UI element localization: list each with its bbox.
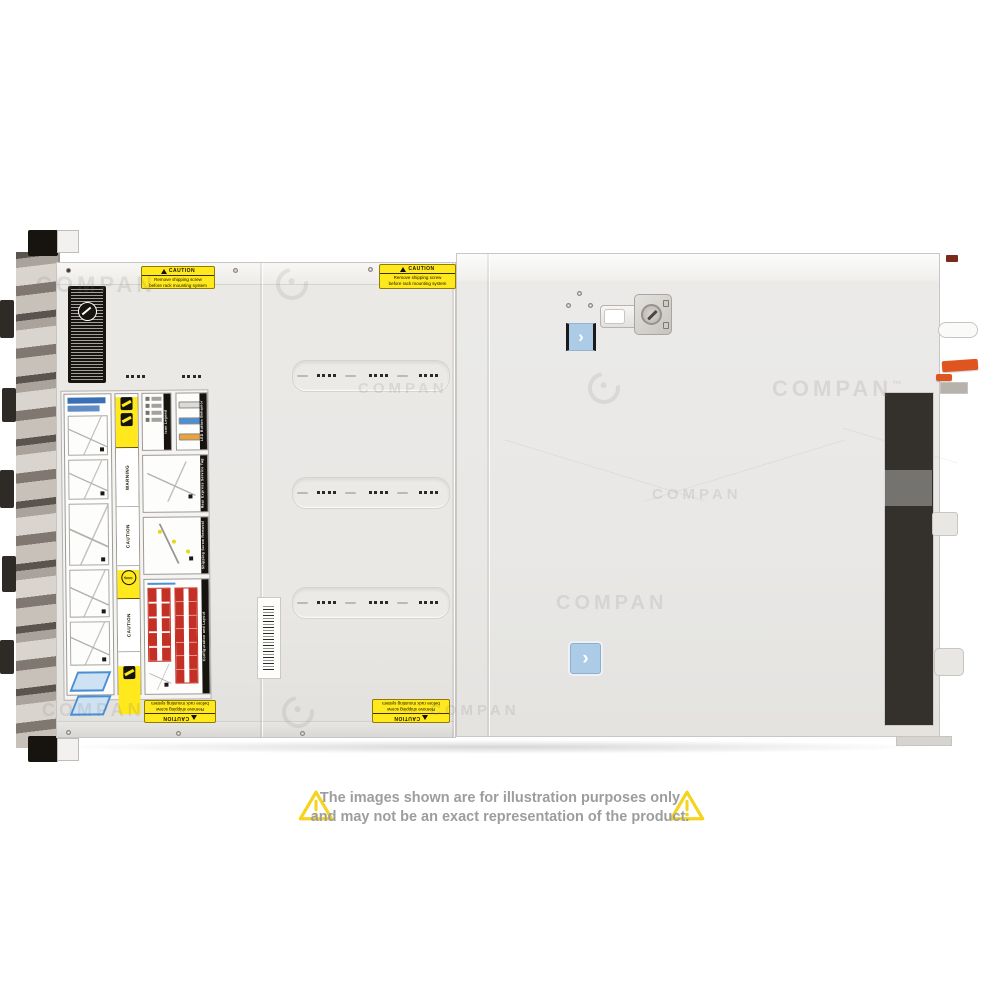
lid-step-diagram bbox=[70, 621, 110, 665]
service-instruction-label: WARNING CAUTION 5mm CAUTION Icon Legend bbox=[60, 389, 211, 701]
led-bar-blue bbox=[179, 417, 201, 424]
shipping-screw-diagram bbox=[148, 523, 196, 564]
rail-step-diagram bbox=[69, 503, 110, 565]
disclaimer: The images shown are for illustration pu… bbox=[0, 789, 1000, 827]
caution-sticker: CAUTION Remove shipping screwbefore rack… bbox=[144, 700, 216, 723]
rail-instructions-label bbox=[63, 393, 114, 695]
service-tag-diagram bbox=[147, 461, 195, 502]
legend-icon bbox=[146, 418, 162, 422]
lid-step-diagram bbox=[69, 569, 110, 617]
lid-seam bbox=[452, 263, 454, 737]
led-behavior-title: LED Button Behavior bbox=[199, 393, 207, 449]
rear-bracket bbox=[940, 382, 968, 394]
warning-triangle-icon bbox=[400, 267, 406, 272]
service-tag-title: Rear Express Service Tag bbox=[200, 455, 208, 511]
legend-icon bbox=[146, 411, 162, 415]
rivet bbox=[588, 303, 593, 308]
icon-legend-title: Icon Legend bbox=[163, 394, 171, 450]
vent-highlight bbox=[884, 470, 932, 506]
drive-handle-nub bbox=[2, 388, 16, 422]
screw-size-icon: 5mm bbox=[121, 570, 136, 585]
caution-header: CAUTION bbox=[408, 266, 434, 272]
legend-icon bbox=[145, 397, 161, 401]
watermark-text: COMPAN bbox=[556, 592, 667, 615]
led-behavior-block: LED Button Behavior bbox=[175, 392, 208, 450]
warning-triangle-icon bbox=[161, 269, 167, 274]
configuration-block: Configuration and Layout bbox=[143, 578, 210, 695]
warning-text: WARNING bbox=[116, 448, 139, 506]
config-legend-bar bbox=[147, 583, 175, 585]
screw-hole bbox=[233, 268, 238, 273]
shipping-screw-title: Shipping Screw Removal bbox=[201, 517, 209, 573]
drive-handle-nub bbox=[0, 640, 14, 674]
lid-shape-diagram bbox=[69, 671, 111, 691]
pinch-hazard-icon bbox=[121, 413, 133, 426]
unlock-icon bbox=[663, 300, 669, 307]
info-label-column: Icon Legend LED Button Behavior Rear Exp… bbox=[141, 392, 208, 695]
rivet bbox=[566, 303, 571, 308]
drive-handle-nub bbox=[0, 470, 14, 508]
shipping-screw-block: Shipping Screw Removal bbox=[143, 516, 210, 575]
rear-foot bbox=[896, 736, 952, 746]
screw-hole bbox=[300, 731, 305, 736]
barcode-sticker bbox=[257, 597, 281, 679]
rear-nub bbox=[946, 255, 958, 262]
psu-latch-orange bbox=[936, 374, 952, 381]
warning-strip: WARNING CAUTION 5mm CAUTION bbox=[114, 393, 141, 695]
front-drive-bay-strip bbox=[16, 252, 60, 748]
rack-ear-bottom bbox=[28, 736, 58, 762]
vent-holes bbox=[182, 375, 185, 378]
watermark-text: COMPAN bbox=[358, 380, 448, 397]
screw-hole bbox=[368, 267, 373, 272]
latch-knob bbox=[604, 309, 625, 324]
rear-vent-grid bbox=[884, 392, 934, 726]
screw-hole bbox=[66, 730, 71, 735]
screw-hole bbox=[176, 731, 181, 736]
led-bar-idle bbox=[179, 401, 201, 408]
watermark-text: COMPAN bbox=[652, 486, 742, 503]
rivet bbox=[577, 291, 582, 296]
drive-config-grid bbox=[174, 587, 198, 683]
caution-header: CAUTION bbox=[163, 715, 189, 721]
rail-label-subheader-bar bbox=[68, 405, 100, 411]
caution-sticker: CAUTION Remove shipping screwbefore rack… bbox=[379, 264, 456, 289]
watermark-text: COMPAN™ bbox=[772, 376, 902, 402]
lid-seam bbox=[487, 254, 489, 736]
latch-direction-label: › bbox=[570, 643, 601, 674]
rail-step-diagram bbox=[68, 459, 108, 499]
psu-handle-orange bbox=[942, 359, 979, 372]
caution-text: CAUTION bbox=[117, 507, 140, 565]
rear-tab bbox=[932, 512, 958, 536]
caution-text-segment: CAUTION bbox=[118, 599, 141, 652]
pinch-hazard-segment bbox=[115, 397, 138, 448]
rear-tab bbox=[934, 648, 964, 676]
screw-size-segment: 5mm bbox=[117, 570, 139, 599]
chevron-right-icon: › bbox=[582, 648, 588, 670]
recessed-handle bbox=[292, 587, 450, 619]
screw-marker bbox=[172, 540, 176, 544]
vent-holes bbox=[126, 375, 129, 378]
warning-triangle-icon bbox=[191, 716, 197, 721]
caution-line1: Remove shipping screw bbox=[145, 706, 215, 712]
disclaimer-line1: The images shown are for illustration pu… bbox=[0, 789, 1000, 808]
configuration-title: Configuration and Layout bbox=[201, 579, 209, 693]
led-bar-amber bbox=[179, 433, 201, 440]
barcode bbox=[263, 604, 274, 670]
caution-text-segment: CAUTION bbox=[117, 507, 140, 566]
caution-header: CAUTION bbox=[169, 268, 195, 274]
watermark-text: COMPAN bbox=[36, 272, 156, 298]
rack-ear-top bbox=[28, 230, 58, 256]
product-image-canvas: CAUTION Remove shipping screwbefore rack… bbox=[0, 0, 1000, 1000]
drive-handle-nub bbox=[0, 300, 14, 338]
legend-icon bbox=[146, 404, 162, 408]
caution-header: CAUTION bbox=[394, 715, 420, 721]
cover-release-latch bbox=[600, 305, 638, 328]
watermark-text: COMPAN bbox=[430, 702, 520, 719]
drive-handle-nub bbox=[2, 556, 16, 592]
caution-line2: before rack mounting system bbox=[380, 281, 455, 287]
service-tag-block: Rear Express Service Tag bbox=[142, 454, 209, 513]
warning-text-segment: WARNING bbox=[116, 448, 139, 507]
no-tilt-icon bbox=[78, 302, 97, 321]
rack-ear-cap-top bbox=[57, 230, 79, 253]
latch-direction-label: › bbox=[566, 323, 596, 351]
rack-ear-cap-bottom bbox=[57, 738, 79, 761]
recessed-handle bbox=[292, 477, 450, 509]
icon-legend-block: Icon Legend bbox=[141, 393, 172, 451]
config-diagram bbox=[149, 664, 171, 690]
caution-line2: before rack mounting system bbox=[145, 700, 215, 706]
screw-marker bbox=[158, 530, 162, 534]
lock-icon bbox=[663, 322, 669, 329]
rear-pull-tab bbox=[938, 322, 978, 338]
drive-config-grid bbox=[147, 588, 171, 662]
regulatory-label bbox=[68, 286, 106, 383]
chassis-shadow bbox=[50, 740, 940, 754]
key-slot-icon bbox=[647, 309, 657, 319]
disclaimer-line2: and may not be an exact representation o… bbox=[0, 808, 1000, 827]
rail-step-diagram bbox=[68, 415, 108, 455]
keylock-cylinder bbox=[641, 304, 662, 325]
screw-marker bbox=[186, 549, 190, 553]
warning-triangle-icon bbox=[422, 716, 428, 721]
chevron-right-icon: › bbox=[578, 327, 584, 347]
pinch-hazard-icon bbox=[120, 397, 132, 410]
keylock bbox=[634, 294, 672, 335]
rail-label-header-bar bbox=[67, 397, 105, 403]
caution-text: CAUTION bbox=[118, 599, 141, 651]
watermark-text: COMPAN bbox=[42, 700, 145, 721]
pinch-hazard-icon bbox=[123, 666, 135, 679]
